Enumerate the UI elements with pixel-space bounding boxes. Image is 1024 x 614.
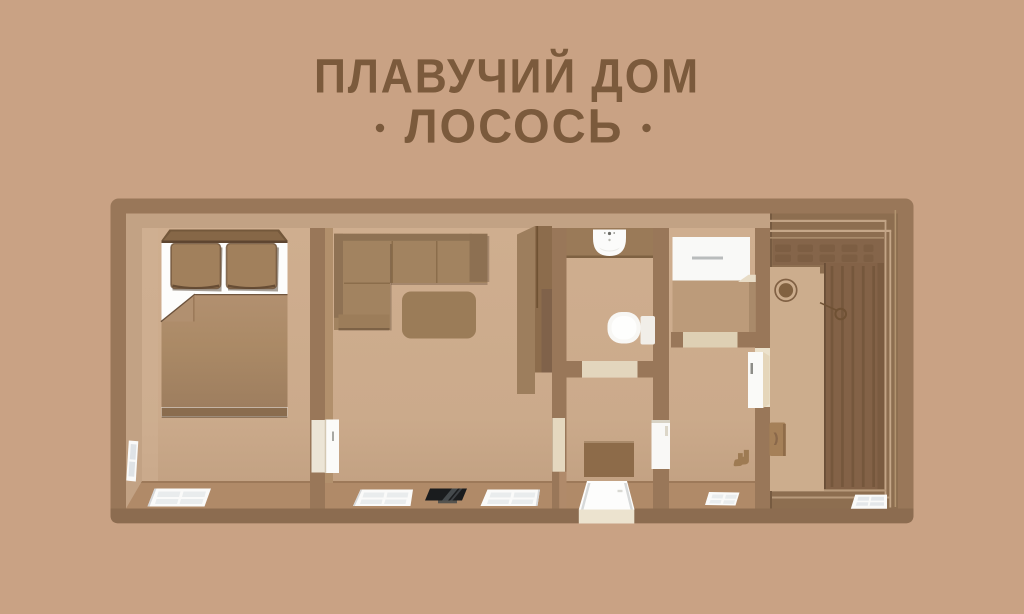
svg-text:ПЛАВУЧИЙ ДОМ: ПЛАВУЧИЙ ДОМ — [314, 49, 700, 104]
svg-text:ЛОСОСЬ: ЛОСОСЬ — [405, 101, 624, 154]
